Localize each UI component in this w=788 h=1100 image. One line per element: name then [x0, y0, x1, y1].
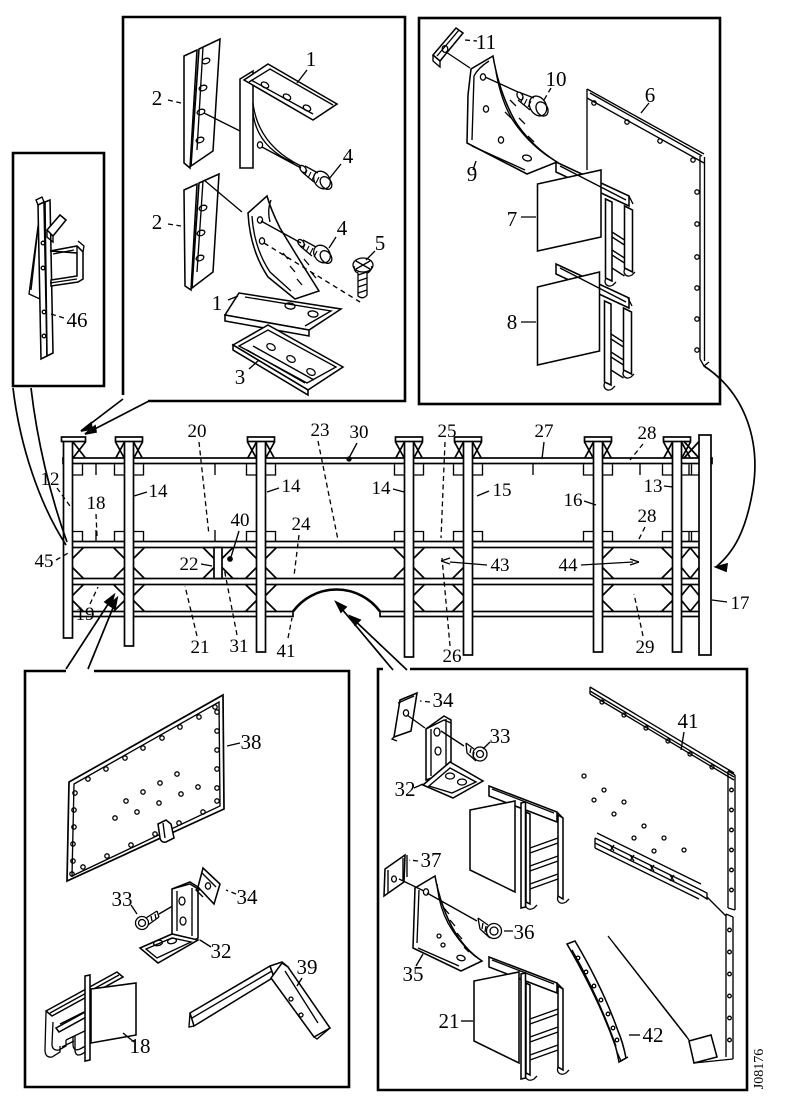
svg-text:9: 9: [467, 162, 478, 186]
svg-text:28: 28: [638, 423, 657, 444]
svg-text:34: 34: [433, 688, 455, 712]
svg-text:32: 32: [395, 777, 416, 801]
svg-text:36: 36: [514, 920, 535, 944]
svg-text:16: 16: [564, 490, 583, 511]
svg-text:31: 31: [230, 636, 249, 657]
svg-text:29: 29: [636, 637, 655, 658]
svg-text:4: 4: [343, 144, 354, 168]
svg-text:5: 5: [375, 231, 386, 255]
svg-text:41: 41: [277, 641, 296, 662]
svg-text:14: 14: [282, 476, 302, 497]
svg-text:17: 17: [731, 593, 750, 614]
svg-text:30: 30: [350, 422, 369, 443]
svg-text:38: 38: [241, 730, 262, 754]
svg-text:1: 1: [212, 291, 223, 315]
svg-text:13: 13: [644, 476, 663, 497]
svg-text:42: 42: [643, 1023, 664, 1047]
svg-text:43: 43: [491, 555, 510, 576]
svg-text:8: 8: [507, 310, 518, 334]
svg-text:21: 21: [439, 1009, 460, 1033]
svg-text:26: 26: [443, 646, 462, 667]
svg-text:15: 15: [493, 480, 512, 501]
svg-text:22: 22: [180, 554, 199, 575]
svg-text:18: 18: [87, 493, 106, 514]
svg-text:2: 2: [152, 86, 163, 110]
svg-text:12: 12: [41, 469, 60, 490]
svg-text:4: 4: [337, 216, 348, 240]
svg-text:J08176: J08176: [752, 1049, 767, 1089]
svg-text:28: 28: [638, 506, 657, 527]
svg-text:21: 21: [191, 637, 210, 658]
svg-text:19: 19: [76, 604, 95, 625]
svg-text:46: 46: [67, 308, 88, 332]
svg-text:14: 14: [149, 481, 169, 502]
svg-text:37: 37: [421, 848, 442, 872]
svg-text:24: 24: [292, 514, 312, 535]
svg-text:6: 6: [645, 83, 656, 107]
svg-text:20: 20: [188, 421, 207, 442]
svg-text:35: 35: [403, 962, 424, 986]
svg-text:3: 3: [235, 365, 246, 389]
svg-text:10: 10: [546, 67, 567, 91]
svg-text:32: 32: [211, 939, 232, 963]
svg-text:14: 14: [372, 478, 392, 499]
svg-text:45: 45: [35, 551, 54, 572]
svg-text:2: 2: [152, 210, 163, 234]
svg-text:34: 34: [237, 885, 259, 909]
svg-text:33: 33: [490, 724, 511, 748]
svg-text:27: 27: [535, 421, 554, 442]
svg-text:25: 25: [438, 421, 457, 442]
svg-text:23: 23: [311, 420, 330, 441]
svg-text:41: 41: [678, 709, 699, 733]
svg-text:1: 1: [306, 47, 317, 71]
svg-text:11: 11: [476, 30, 496, 54]
svg-text:18: 18: [130, 1034, 151, 1058]
svg-text:40: 40: [231, 510, 250, 531]
svg-text:44: 44: [559, 555, 579, 576]
svg-text:33: 33: [112, 887, 133, 911]
svg-text:7: 7: [507, 207, 518, 231]
svg-text:39: 39: [297, 955, 318, 979]
